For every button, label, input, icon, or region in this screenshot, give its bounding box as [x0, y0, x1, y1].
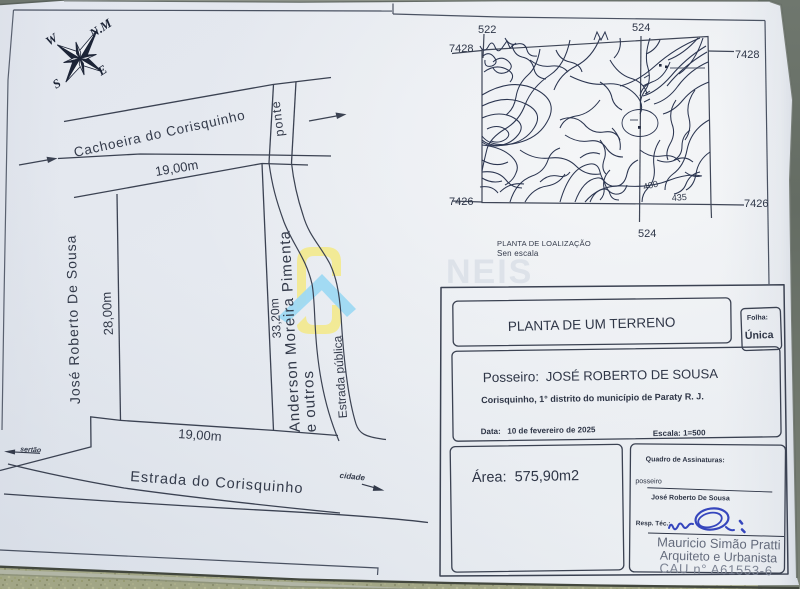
svg-text:Folha:: Folha:: [747, 314, 768, 322]
svg-text:19,00m: 19,00m: [178, 426, 222, 444]
svg-text:Sen escala: Sen escala: [497, 249, 539, 258]
svg-text:JOSÉ ROBERTO DE SOUSA: JOSÉ ROBERTO DE SOUSA: [546, 366, 719, 384]
svg-text:7428: 7428: [449, 43, 473, 55]
svg-text:posseiro: posseiro: [635, 478, 662, 485]
svg-text:Área: 575,90m2: Área: 575,90m2: [472, 467, 579, 486]
svg-text:522: 522: [478, 24, 496, 36]
svg-text:Resp. Téc.:: Resp. Téc.:: [636, 520, 671, 527]
svg-text:28,00m: 28,00m: [99, 292, 116, 336]
svg-text:CAU n° A61553-6: CAU n° A61553-6: [659, 560, 773, 578]
svg-text:PLANTA DE LOALIZAÇÃO: PLANTA DE LOALIZAÇÃO: [497, 239, 591, 248]
svg-text:NEIS: NEIS: [446, 253, 533, 291]
svg-text:7428: 7428: [735, 49, 759, 61]
svg-text:524: 524: [632, 22, 650, 34]
svg-text:e outros: e outros: [300, 370, 320, 433]
svg-text:Única: Única: [745, 328, 774, 342]
svg-text:7426: 7426: [744, 198, 768, 210]
svg-text:José Roberto De Sousa: José Roberto De Sousa: [651, 494, 730, 502]
svg-text:Quadro de Assinaturas:: Quadro de Assinaturas:: [646, 456, 725, 464]
svg-text:435: 435: [671, 192, 687, 203]
svg-text:Posseiro:: Posseiro:: [483, 369, 540, 385]
svg-text:7426: 7426: [449, 196, 473, 208]
svg-text:Escala: 1=500: Escala: 1=500: [653, 428, 706, 438]
svg-text:524: 524: [638, 228, 656, 240]
svg-text:sertão: sertão: [20, 446, 42, 454]
